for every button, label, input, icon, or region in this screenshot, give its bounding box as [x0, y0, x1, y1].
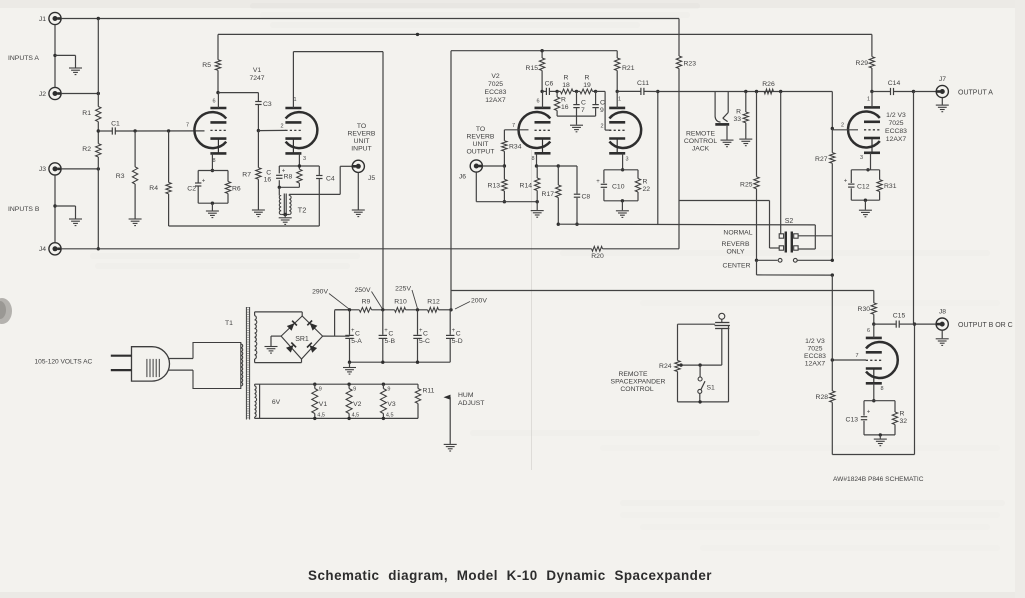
svg-text:ONLY: ONLY: [726, 249, 744, 256]
svg-text:R25: R25: [740, 182, 753, 189]
svg-text:R20: R20: [591, 253, 604, 260]
svg-text:C: C: [266, 170, 271, 177]
svg-text:3: 3: [860, 155, 863, 161]
svg-text:C14: C14: [888, 80, 901, 87]
svg-text:R8: R8: [284, 174, 293, 181]
svg-text:7247: 7247: [249, 75, 264, 82]
svg-text:290V: 290V: [312, 289, 328, 296]
svg-text:C2: C2: [187, 186, 196, 193]
svg-text:J6: J6: [459, 174, 466, 181]
svg-text:TO: TO: [476, 126, 485, 133]
svg-text:UNIT: UNIT: [354, 138, 370, 145]
svg-text:R: R: [585, 75, 590, 82]
svg-text:19: 19: [583, 82, 591, 89]
svg-text:R: R: [736, 109, 741, 116]
svg-text:18: 18: [562, 82, 570, 89]
svg-text:ADJUST: ADJUST: [458, 400, 484, 407]
svg-text:REMOTE: REMOTE: [618, 371, 648, 378]
svg-text:CONTROL: CONTROL: [620, 386, 653, 393]
svg-text:C1: C1: [111, 121, 120, 128]
svg-text:R15: R15: [526, 65, 539, 72]
svg-text:6: 6: [212, 99, 215, 105]
svg-text:C: C: [388, 331, 393, 338]
svg-text:AW#1824B P846 SCHEMATIC: AW#1824B P846 SCHEMATIC: [833, 476, 924, 483]
svg-text:2: 2: [280, 124, 283, 130]
svg-text:5-A: 5-A: [351, 338, 362, 345]
svg-text:R27: R27: [815, 156, 828, 163]
svg-text:7: 7: [855, 353, 858, 359]
svg-text:SPACEXPANDER: SPACEXPANDER: [611, 379, 666, 386]
svg-text:R34: R34: [509, 144, 522, 151]
svg-text:200V: 200V: [471, 298, 487, 305]
svg-text:7025: 7025: [807, 346, 822, 353]
svg-text:4,5: 4,5: [352, 413, 360, 419]
svg-text:7025: 7025: [488, 81, 503, 88]
svg-text:8: 8: [880, 386, 883, 392]
svg-text:R: R: [561, 97, 566, 104]
svg-text:J4: J4: [39, 246, 46, 253]
svg-text:R10: R10: [394, 299, 407, 306]
svg-text:REMOTE: REMOTE: [686, 131, 716, 138]
svg-text:C10: C10: [612, 184, 625, 191]
svg-text:R29: R29: [856, 60, 869, 67]
svg-text:4,5: 4,5: [386, 413, 394, 419]
svg-text:R23: R23: [684, 61, 697, 68]
svg-text:7025: 7025: [888, 120, 903, 127]
svg-text:33: 33: [733, 116, 741, 123]
svg-text:R28: R28: [816, 394, 829, 401]
svg-text:TO: TO: [357, 123, 366, 130]
svg-text:1: 1: [867, 97, 870, 103]
svg-text:6: 6: [536, 99, 539, 105]
svg-text:3: 3: [303, 156, 306, 162]
svg-text:5-B: 5-B: [385, 338, 396, 345]
svg-text:INPUT: INPUT: [351, 146, 371, 153]
svg-text:22: 22: [643, 186, 651, 193]
svg-text:R6: R6: [232, 186, 241, 193]
svg-text:16: 16: [561, 104, 569, 111]
svg-text:HUM: HUM: [458, 392, 474, 399]
svg-text:6: 6: [867, 328, 870, 334]
svg-text:9: 9: [353, 387, 356, 393]
svg-text:C: C: [581, 100, 586, 107]
svg-text:SR1: SR1: [295, 336, 309, 343]
svg-text:T1: T1: [225, 320, 233, 327]
svg-text:S2: S2: [785, 218, 794, 225]
svg-text:C15: C15: [893, 313, 906, 320]
svg-text:ECC83: ECC83: [804, 353, 826, 360]
svg-text:C11: C11: [637, 80, 649, 87]
svg-text:7: 7: [186, 123, 189, 129]
svg-text:C13: C13: [846, 417, 859, 424]
svg-text:R2: R2: [82, 146, 91, 153]
svg-text:8: 8: [531, 156, 534, 162]
svg-text:V2: V2: [491, 73, 500, 80]
svg-text:6V: 6V: [272, 399, 281, 406]
svg-text:ECC83: ECC83: [485, 89, 507, 96]
svg-text:1/2 V3: 1/2 V3: [886, 112, 906, 119]
svg-text:R31: R31: [884, 183, 897, 190]
svg-text:R14: R14: [520, 183, 533, 190]
svg-text:+: +: [867, 410, 871, 416]
svg-text:C: C: [600, 100, 605, 107]
svg-text:R: R: [564, 75, 569, 82]
svg-text:12AX7: 12AX7: [886, 136, 907, 143]
svg-text:CONTROL: CONTROL: [684, 138, 717, 145]
svg-text:T2: T2: [298, 206, 307, 215]
svg-text:UNIT: UNIT: [473, 141, 489, 148]
svg-text:5-D: 5-D: [452, 338, 463, 345]
svg-text:9: 9: [600, 107, 604, 114]
svg-text:NORMAL: NORMAL: [723, 230, 752, 237]
svg-text:R4: R4: [149, 185, 158, 192]
svg-text:J5: J5: [368, 175, 375, 182]
svg-text:OUTPUT B OR C: OUTPUT B OR C: [958, 322, 1013, 329]
svg-text:+: +: [202, 179, 206, 185]
svg-text:INPUTS A: INPUTS A: [8, 55, 39, 62]
svg-text:Schematic diagram, Model K-10: Schematic diagram, Model K-10 Dynamic Sp…: [308, 568, 712, 583]
svg-text:R1: R1: [82, 110, 91, 117]
svg-text:+: +: [844, 179, 848, 185]
svg-text:+: +: [596, 179, 600, 185]
svg-text:3: 3: [625, 157, 628, 163]
svg-text:2: 2: [600, 124, 603, 130]
svg-text:32: 32: [900, 418, 908, 425]
svg-text:REVERB: REVERB: [722, 241, 750, 248]
svg-text:J3: J3: [39, 166, 46, 173]
svg-text:R5: R5: [202, 62, 211, 69]
svg-text:5-C: 5-C: [419, 338, 430, 345]
svg-text:R21: R21: [622, 65, 635, 72]
svg-text:1: 1: [618, 97, 621, 103]
svg-text:R17: R17: [542, 191, 555, 198]
svg-text:R13: R13: [488, 183, 501, 190]
svg-text:R24: R24: [659, 363, 672, 370]
svg-text:REVERB: REVERB: [348, 131, 376, 138]
svg-text:16: 16: [264, 177, 272, 184]
svg-text:R: R: [900, 411, 905, 418]
svg-text:R30: R30: [858, 306, 871, 313]
svg-text:9: 9: [387, 387, 390, 393]
svg-text:C: C: [423, 331, 428, 338]
svg-text:R26: R26: [762, 81, 775, 88]
svg-text:9: 9: [319, 387, 322, 393]
svg-text:4,5: 4,5: [317, 413, 325, 419]
svg-text:ECC83: ECC83: [885, 128, 907, 135]
svg-text:J2: J2: [39, 91, 46, 98]
svg-text:105-120 VOLTS AC: 105-120 VOLTS AC: [35, 359, 93, 366]
svg-text:V1: V1: [319, 401, 328, 408]
svg-text:V1: V1: [253, 67, 262, 74]
svg-text:J8: J8: [939, 309, 946, 316]
svg-text:C6: C6: [545, 81, 554, 88]
svg-text:7: 7: [512, 123, 515, 129]
svg-text:REVERB: REVERB: [467, 134, 495, 141]
svg-text:CENTER: CENTER: [723, 263, 751, 270]
svg-text:S1: S1: [707, 385, 716, 392]
svg-text:1/2 V3: 1/2 V3: [805, 338, 825, 345]
svg-text:12AX7: 12AX7: [485, 97, 506, 104]
svg-text:J1: J1: [39, 16, 46, 23]
svg-text:7: 7: [581, 107, 585, 114]
svg-text:2: 2: [841, 123, 844, 129]
svg-text:225V: 225V: [395, 286, 411, 293]
svg-text:R3: R3: [116, 173, 125, 180]
svg-text:INPUTS B: INPUTS B: [8, 206, 40, 213]
svg-text:V3: V3: [387, 401, 396, 408]
svg-text:J7: J7: [939, 76, 946, 83]
svg-text:C: C: [456, 331, 461, 338]
svg-text:R7: R7: [242, 172, 251, 179]
svg-text:C8: C8: [582, 194, 591, 201]
svg-text:OUTPUT: OUTPUT: [467, 149, 495, 156]
svg-text:C3: C3: [263, 101, 272, 108]
svg-text:OUTPUT A: OUTPUT A: [958, 89, 993, 96]
svg-text:JACK: JACK: [692, 146, 710, 153]
svg-text:V2: V2: [353, 401, 362, 408]
svg-text:C12: C12: [857, 184, 870, 191]
svg-text:R12: R12: [427, 299, 440, 306]
svg-text:R: R: [643, 179, 648, 186]
svg-text:250V: 250V: [355, 287, 371, 294]
svg-text:12AX7: 12AX7: [805, 361, 826, 368]
svg-text:C4: C4: [326, 176, 335, 183]
svg-text:R9: R9: [362, 299, 371, 306]
svg-text:R11: R11: [423, 388, 435, 395]
svg-text:C: C: [355, 331, 360, 338]
